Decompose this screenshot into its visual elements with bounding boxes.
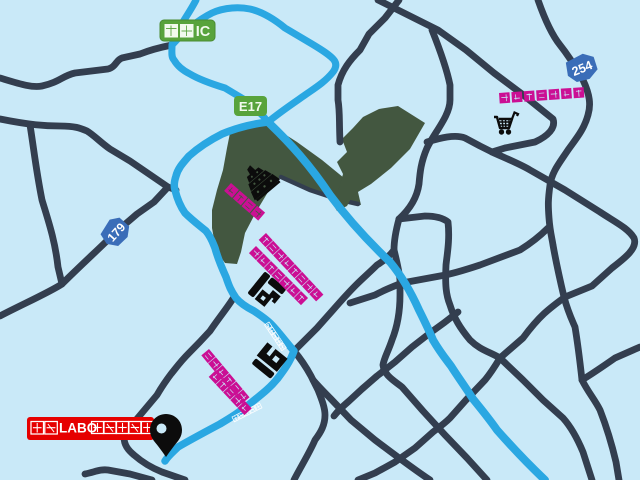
svg-text:E17: E17 (239, 99, 262, 114)
svg-text:IC: IC (196, 24, 211, 40)
